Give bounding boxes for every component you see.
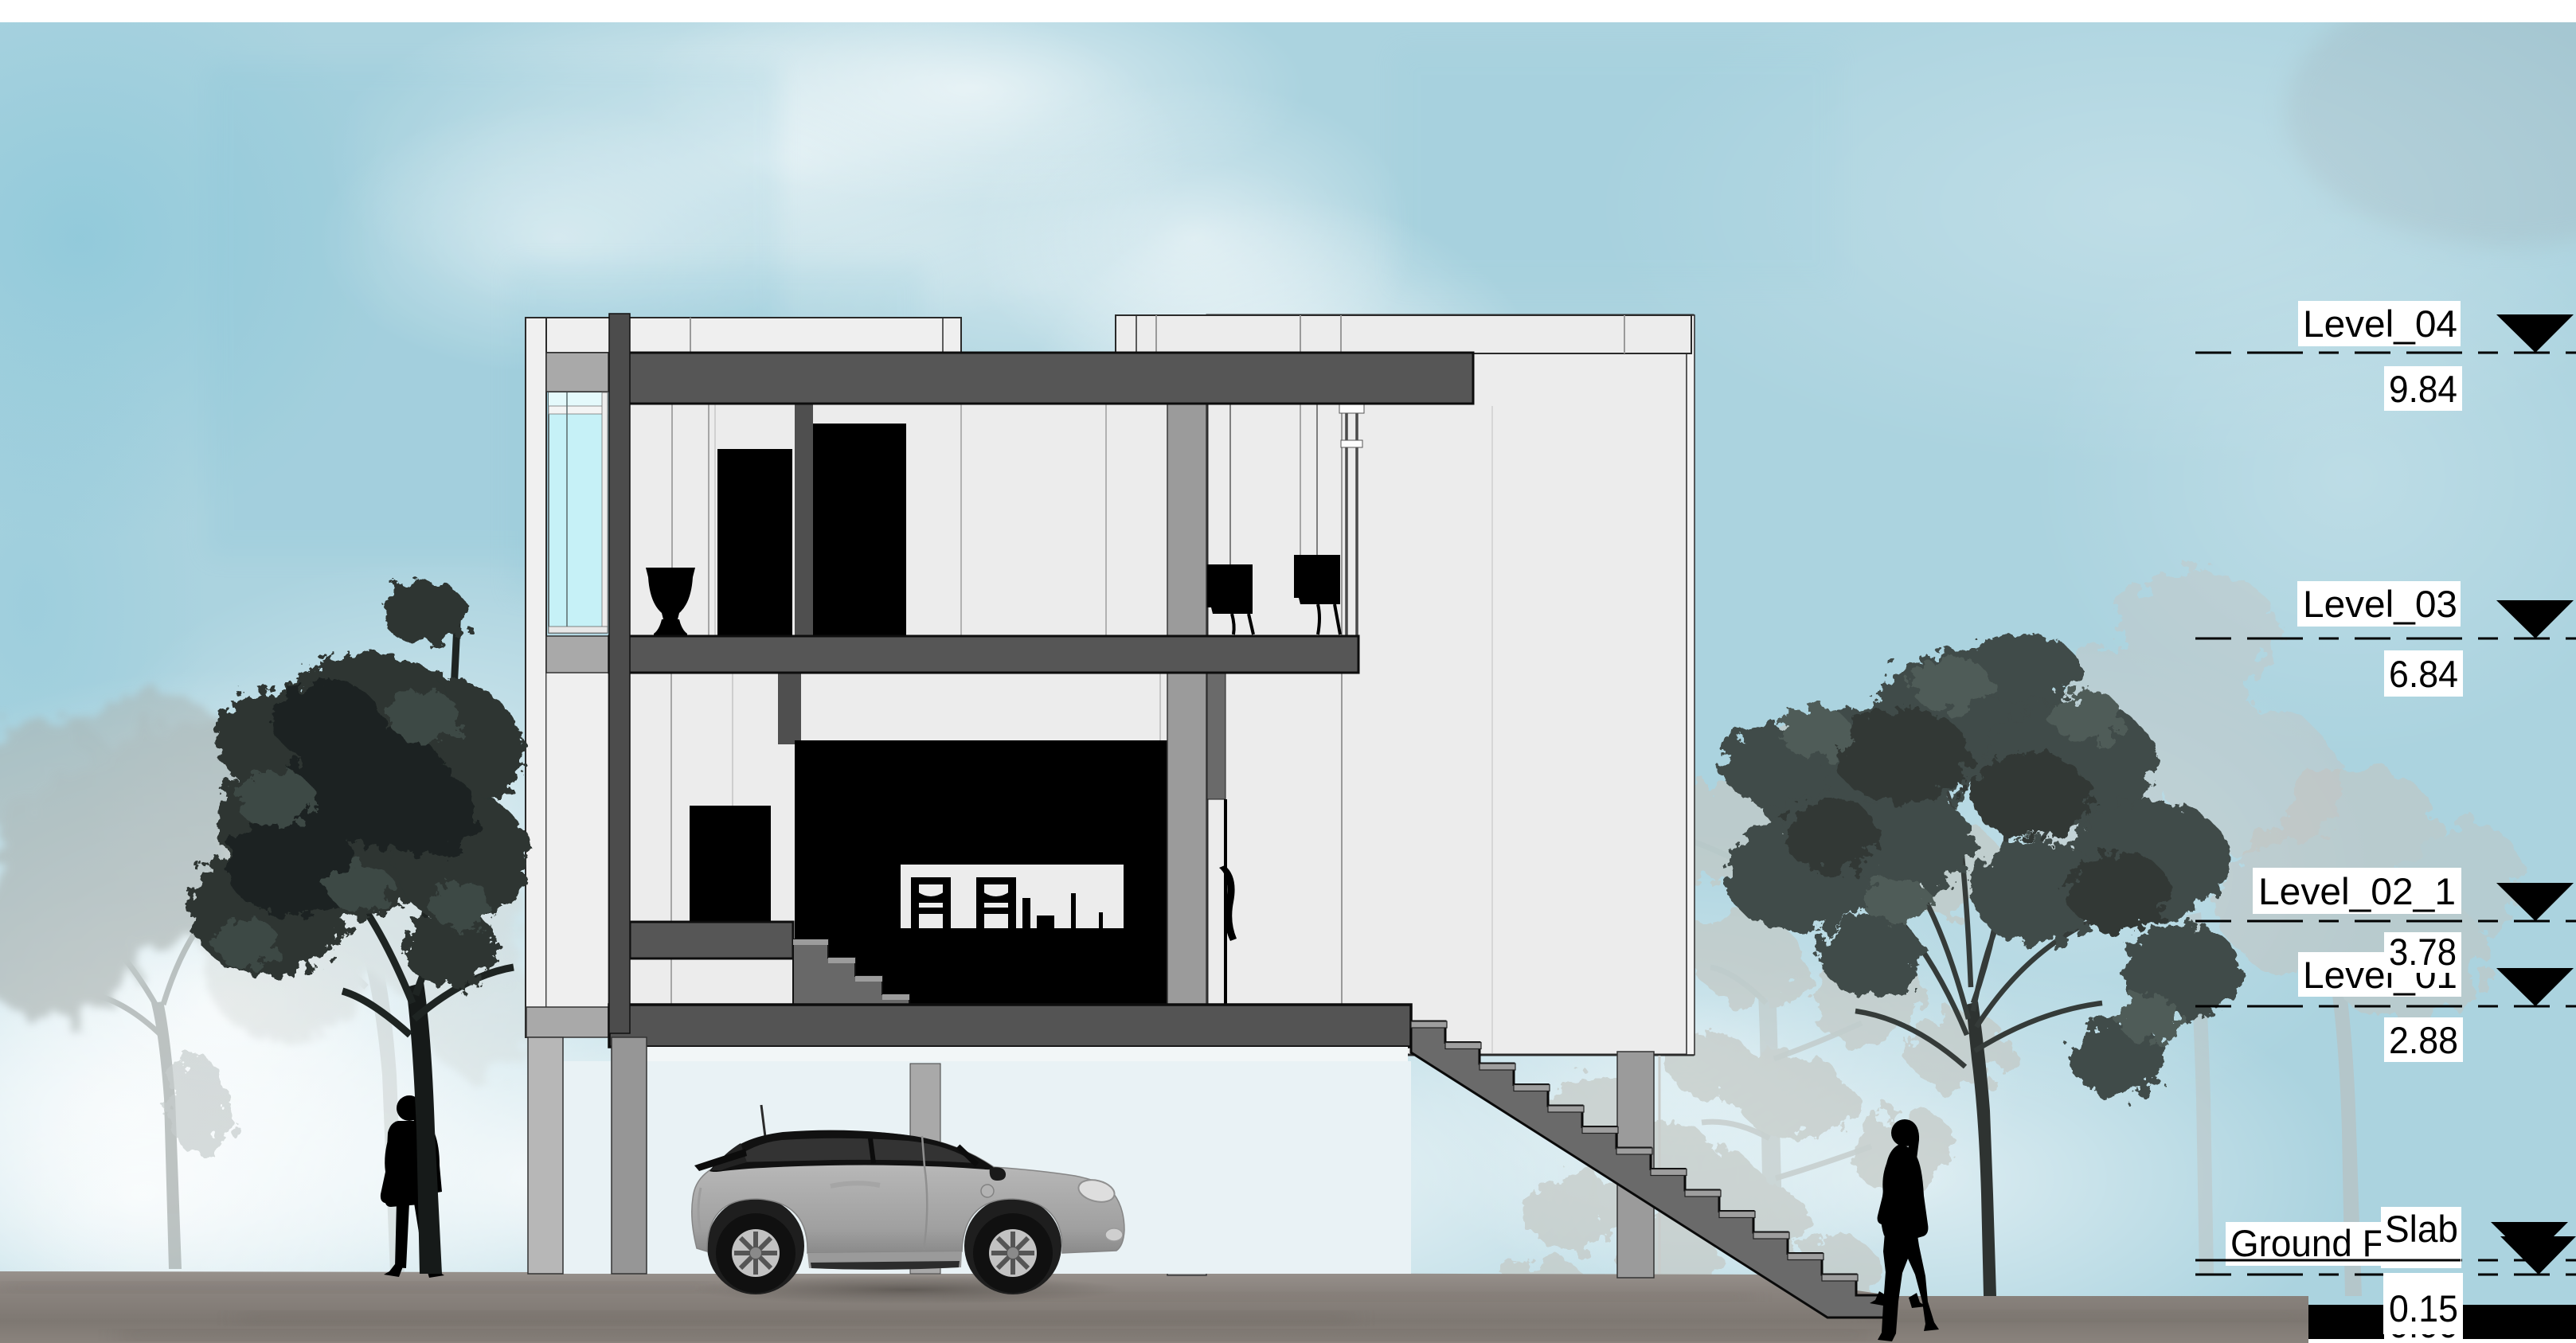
svg-text:Slab: Slab xyxy=(2385,1208,2458,1250)
svg-text:2.88: 2.88 xyxy=(2389,1019,2458,1061)
svg-text:6.84: 6.84 xyxy=(2389,653,2458,695)
svg-text:9.84: 9.84 xyxy=(2389,368,2457,410)
svg-text:Level_02_1: Level_02_1 xyxy=(2258,870,2456,912)
svg-text:3.78: 3.78 xyxy=(2389,931,2457,973)
svg-text:Level_04: Level_04 xyxy=(2303,303,2457,345)
svg-text:0.15: 0.15 xyxy=(2389,1287,2458,1329)
svg-text:Level_03: Level_03 xyxy=(2303,583,2457,625)
